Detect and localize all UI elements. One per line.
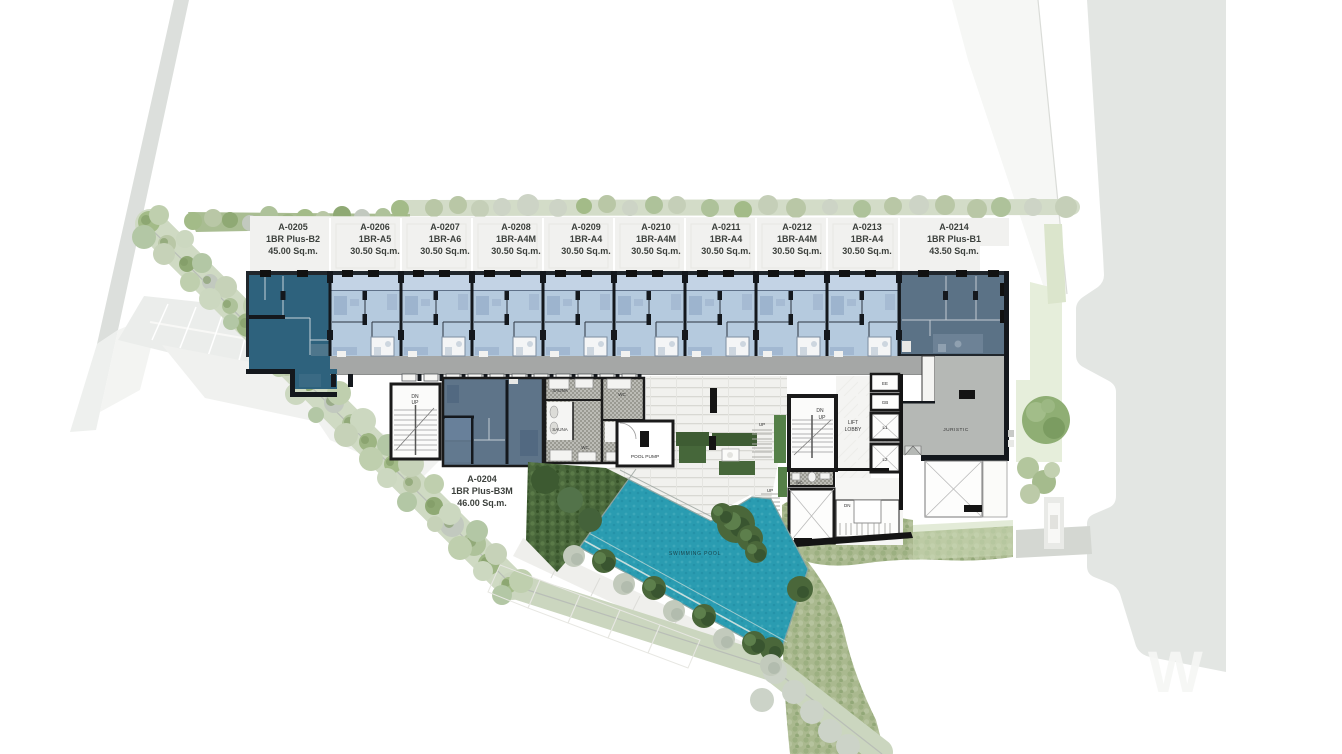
svg-text:A-0214: A-0214 [939, 222, 969, 232]
svg-text:A-0208: A-0208 [501, 222, 531, 232]
svg-text:A-0213: A-0213 [852, 222, 882, 232]
svg-text:UP: UP [819, 415, 827, 421]
svg-text:DN: DN [816, 408, 824, 414]
svg-text:UP: UP [767, 488, 773, 493]
svg-text:A-0210: A-0210 [641, 222, 671, 232]
svg-text:A-0204: A-0204 [467, 474, 497, 484]
svg-text:1BR-A4M: 1BR-A4M [777, 234, 817, 244]
svg-text:LOBBY: LOBBY [845, 427, 862, 433]
svg-text:WC: WC [796, 480, 803, 485]
svg-text:43.50 Sq.m.: 43.50 Sq.m. [929, 246, 979, 256]
svg-text:1BR-A4M: 1BR-A4M [496, 234, 536, 244]
svg-text:GB: GB [882, 400, 889, 405]
svg-text:1BR-A4: 1BR-A4 [851, 234, 884, 244]
svg-text:DN: DN [844, 503, 851, 508]
svg-text:1BR Plus-B2: 1BR Plus-B2 [266, 234, 320, 244]
svg-text:30.50 Sq.m.: 30.50 Sq.m. [350, 246, 400, 256]
svg-text:A-0212: A-0212 [782, 222, 812, 232]
svg-text:1BR-A5: 1BR-A5 [359, 234, 392, 244]
svg-text:1BR Plus-B3M: 1BR Plus-B3M [451, 486, 513, 496]
svg-text:1BR-A4: 1BR-A4 [710, 234, 743, 244]
svg-text:SAUNA: SAUNA [552, 427, 568, 432]
svg-text:A-0205: A-0205 [278, 222, 308, 232]
svg-text:30.50 Sq.m.: 30.50 Sq.m. [420, 246, 470, 256]
svg-text:LIFT: LIFT [848, 420, 858, 426]
svg-text:WC: WC [618, 392, 626, 397]
svg-text:46.00 Sq.m.: 46.00 Sq.m. [457, 498, 507, 508]
svg-text:JURISTIC: JURISTIC [943, 427, 969, 433]
svg-text:45.00 Sq.m.: 45.00 Sq.m. [268, 246, 318, 256]
svg-text:UP: UP [412, 400, 420, 406]
svg-text:L2: L2 [882, 457, 888, 462]
svg-text:30.50 Sq.m.: 30.50 Sq.m. [701, 246, 751, 256]
svg-text:A-0211: A-0211 [711, 222, 740, 232]
svg-text:L1: L1 [882, 425, 888, 430]
svg-text:WC: WC [581, 445, 589, 450]
svg-text:EE: EE [882, 381, 888, 386]
svg-text:30.50 Sq.m.: 30.50 Sq.m. [842, 246, 892, 256]
svg-text:A-0207: A-0207 [430, 222, 460, 232]
svg-text:A-0206: A-0206 [360, 222, 390, 232]
svg-text:30.50 Sq.m.: 30.50 Sq.m. [561, 246, 611, 256]
svg-text:POOL PUMP: POOL PUMP [631, 454, 659, 460]
svg-text:1BR Plus-B1: 1BR Plus-B1 [927, 234, 981, 244]
svg-text:SAUNA: SAUNA [552, 388, 568, 393]
svg-text:30.50 Sq.m.: 30.50 Sq.m. [631, 246, 681, 256]
svg-text:UP: UP [759, 422, 765, 427]
svg-text:1BR-A4M: 1BR-A4M [636, 234, 676, 244]
svg-text:W: W [1148, 640, 1203, 705]
svg-text:30.50 Sq.m.: 30.50 Sq.m. [772, 246, 822, 256]
svg-text:A-0209: A-0209 [571, 222, 601, 232]
svg-text:1BR-A6: 1BR-A6 [429, 234, 462, 244]
svg-text:SWIMMING POOL: SWIMMING POOL [669, 551, 721, 557]
svg-text:30.50 Sq.m.: 30.50 Sq.m. [491, 246, 541, 256]
svg-text:1BR-A4: 1BR-A4 [570, 234, 603, 244]
